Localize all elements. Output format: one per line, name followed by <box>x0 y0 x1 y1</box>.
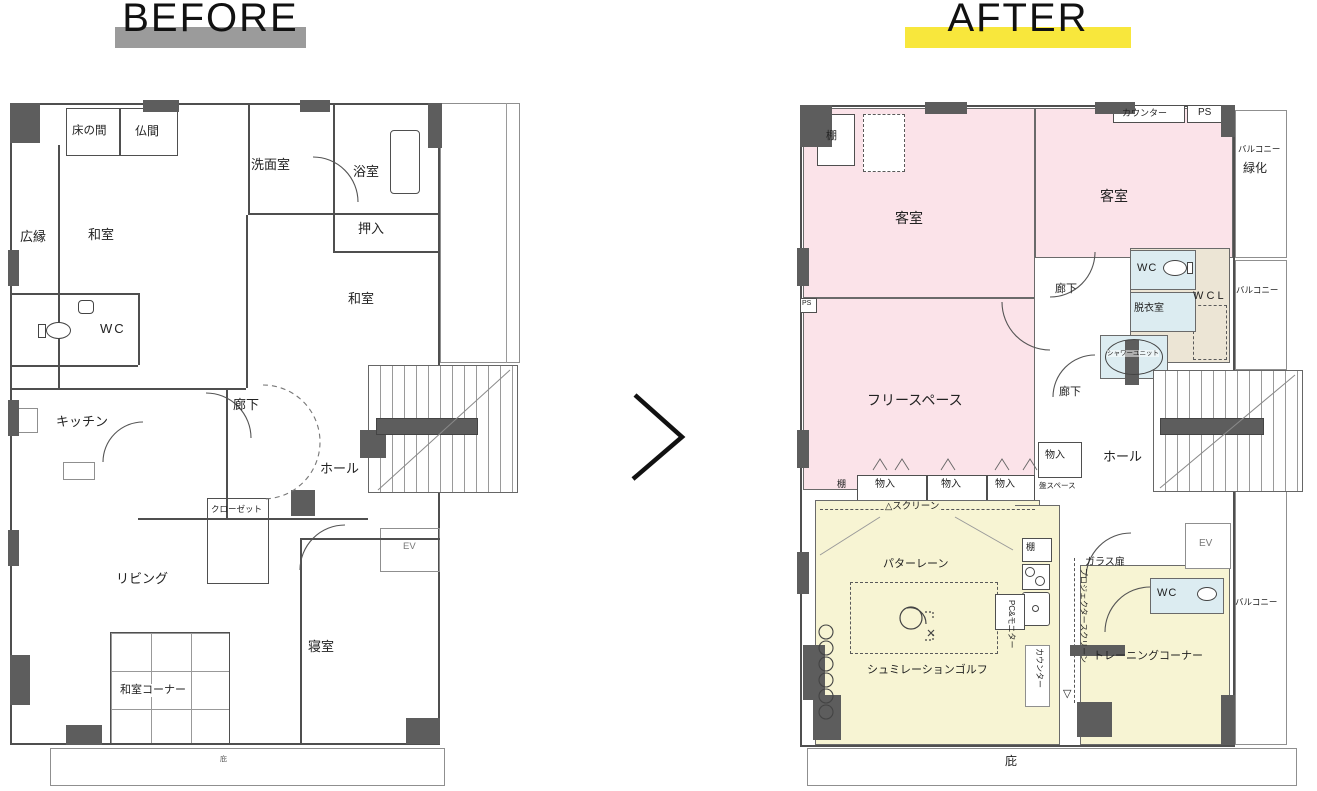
before-label-washitsu-corner: 和室コーナー <box>120 684 186 697</box>
before-label-wc: WC <box>100 322 126 337</box>
after-label-eaves: 庇 <box>1005 755 1017 769</box>
after-label-shelf-row: 棚 <box>837 479 846 489</box>
after-label-counter-side: カウンター <box>1034 648 1045 718</box>
before-label-tokonoma: 床の間 <box>72 125 107 138</box>
after-label-storage2: 物入 <box>941 479 961 491</box>
before-label-butsuma: 仏間 <box>135 125 159 139</box>
after-label-wc1: WC <box>1137 262 1157 275</box>
after-label-guest1: 客室 <box>895 210 923 226</box>
after-label-hall: ホール <box>1103 450 1142 465</box>
before-label-oshiire: 押入 <box>358 222 384 237</box>
before-floorplan: 庇 床の間 仏間 洗面室 浴室 押入 広縁 和室 和室 WC キッチン <box>8 100 560 791</box>
after-label-simulation-golf: シュミレーションゴルフ <box>867 664 988 677</box>
after-label-putter-lane: パターレーン <box>883 558 948 571</box>
after-label-storage-right: 物入 <box>1045 450 1065 462</box>
after-label-shelf-mid: 棚 <box>1026 542 1035 552</box>
after-label-wc2: WC <box>1157 587 1177 600</box>
after-label-panel-space: 盤スペース <box>1039 482 1076 491</box>
before-label-hall: ホール <box>320 462 359 477</box>
before-title: BEFORE <box>115 0 306 41</box>
before-label-hiroen: 広縁 <box>20 230 46 245</box>
after-label-wcl: W C L <box>1193 290 1224 303</box>
after-label-projector-screen: プロジェクタースクリーン <box>1078 568 1089 698</box>
after-label-elevator: EV <box>1199 538 1212 550</box>
after-door-arcs <box>795 100 1317 791</box>
after-label-greening: 緑化 <box>1243 162 1267 176</box>
before-label-kitchen: キッチン <box>56 415 108 430</box>
golf-swing-figure-icon <box>900 607 934 640</box>
before-eaves-label: 庇 <box>220 756 227 764</box>
after-label-balcony-bottom: バルコニー <box>1235 598 1277 608</box>
before-after-floorplan-comparison: BEFORE AFTER 庇 床の間 仏間 洗面室 浴室 押入 広縁 和室 和室 <box>0 0 1317 791</box>
after-label-counter-top: カウンター <box>1122 108 1167 118</box>
after-label-glass-door: ガラス扉 <box>1085 557 1125 569</box>
after-label-shower: シャワーユニット <box>1107 350 1159 357</box>
before-label-corridor: 廊下 <box>233 398 259 413</box>
after-label-corridor1: 廊下 <box>1055 283 1077 296</box>
after-label-training: トレーニングコーナー <box>1093 650 1203 663</box>
after-label-guest2: 客室 <box>1100 188 1128 204</box>
stool-row-icon <box>819 625 833 719</box>
after-label-ps-left: PS <box>802 300 811 308</box>
projector-marker-icon: ▽ <box>1063 688 1071 701</box>
after-label-storage1: 物入 <box>875 479 895 491</box>
before-label-closet: クローゼット <box>211 505 262 515</box>
after-label-pc-monitor: PC&モニター <box>1006 600 1017 680</box>
after-label-corridor2: 廊下 <box>1059 386 1081 399</box>
after-label-ps-top: PS <box>1198 107 1211 119</box>
after-label-shelf-top: 棚 <box>826 130 837 143</box>
toilet-icon <box>1197 587 1217 601</box>
after-label-balcony-mid: バルコニー <box>1236 286 1278 296</box>
after-label-free-space: フリースペース <box>867 392 963 408</box>
toilet-icon <box>46 322 71 339</box>
before-label-washitsu2: 和室 <box>348 292 374 307</box>
toilet-icon <box>1163 260 1187 276</box>
after-label-balcony-top: バルコニー <box>1238 145 1280 155</box>
before-label-washroom: 洗面室 <box>251 158 290 173</box>
before-label-washitsu: 和室 <box>88 228 114 243</box>
before-label-elevator: EV <box>403 542 416 553</box>
after-label-screen: △スクリーン <box>885 502 939 513</box>
before-label-bedroom: 寝室 <box>308 640 334 655</box>
after-label-dressing: 脱衣室 <box>1134 303 1164 315</box>
after-label-storage3: 物入 <box>995 479 1015 491</box>
after-title: AFTER <box>905 0 1131 41</box>
chevron-right-icon <box>600 380 720 500</box>
before-label-living: リビング <box>116 572 168 587</box>
after-floorplan: 客室 客室 フリースペース 棚 カウンター PS バルコニー 緑化 バルコニー … <box>795 100 1317 791</box>
before-label-bathroom: 浴室 <box>353 165 379 180</box>
before-door-arcs <box>8 100 560 791</box>
